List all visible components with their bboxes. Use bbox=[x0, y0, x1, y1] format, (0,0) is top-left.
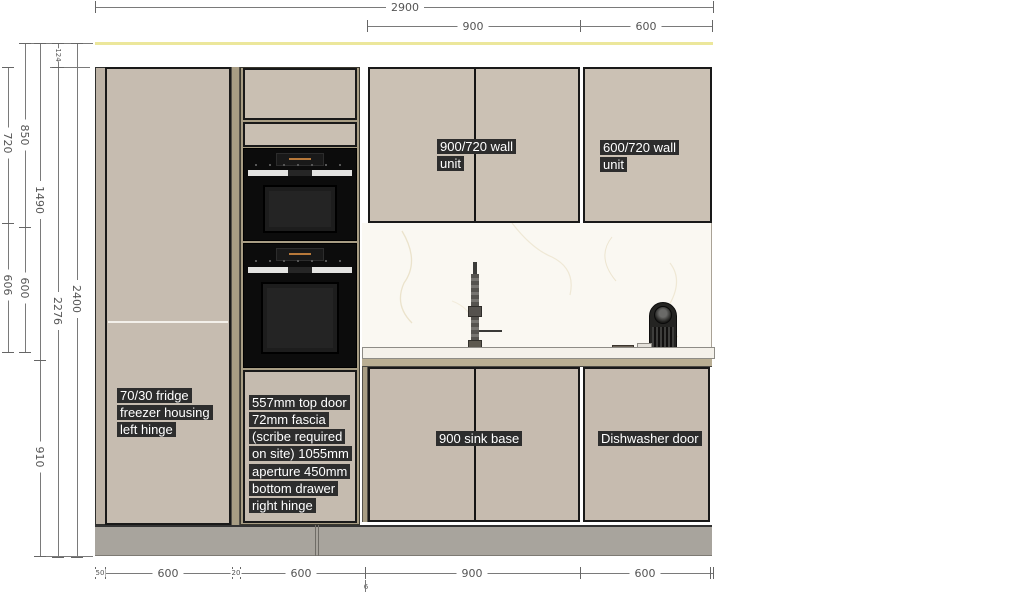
oven-handle bbox=[248, 267, 352, 273]
single-oven[interactable] bbox=[243, 243, 357, 368]
dim-label: 900 bbox=[457, 567, 488, 580]
dim-label: 600 bbox=[18, 273, 31, 304]
wall-unit-600-label: 600/720 wall unit bbox=[600, 139, 682, 173]
coffee-machine-grill bbox=[652, 327, 674, 347]
oven-tower-top-door[interactable] bbox=[243, 68, 357, 120]
dim-label: 900 bbox=[458, 20, 489, 33]
dim-label: 600 bbox=[286, 567, 317, 580]
dim-label: 720 bbox=[1, 128, 14, 159]
ceiling-line bbox=[95, 42, 713, 45]
dim-label: 606 bbox=[1, 270, 14, 301]
fridge-label: 70/30 fridge freezer housing left hinge bbox=[117, 387, 213, 438]
dim-label: 2900 bbox=[386, 1, 424, 14]
dim-label: 850 bbox=[18, 120, 31, 151]
fridge-freezer-door[interactable] bbox=[105, 67, 231, 525]
dishwasher-label: Dishwasher door bbox=[598, 430, 702, 447]
dim-label: 20 bbox=[231, 569, 242, 577]
oven-handle bbox=[248, 170, 352, 176]
filler-strip bbox=[231, 67, 240, 525]
oven-tower-fascia-drawer[interactable] bbox=[243, 122, 357, 147]
dim-label: 600 bbox=[153, 567, 184, 580]
oven-buttons bbox=[255, 260, 345, 262]
base-top-rail bbox=[362, 359, 712, 367]
dim-label: 600 bbox=[631, 20, 662, 33]
dim-label: 50 bbox=[95, 569, 106, 577]
compact-oven[interactable] bbox=[243, 148, 357, 241]
plinth-joint bbox=[318, 525, 319, 556]
dim-label: 2276 bbox=[51, 292, 64, 330]
wall-unit-900-label: 900/720 wall unit bbox=[437, 138, 519, 172]
sink-base-label: 900 sink base bbox=[436, 430, 522, 447]
dim-label: 910 bbox=[33, 442, 46, 473]
oven-door-window bbox=[263, 185, 337, 233]
coffee-machine-dial bbox=[654, 306, 672, 324]
tap-spout bbox=[479, 330, 502, 332]
oven-door-window bbox=[261, 282, 339, 354]
dim-label: 2400 bbox=[70, 280, 83, 318]
dim-label: 124 bbox=[53, 48, 63, 61]
dim-label: 6 bbox=[363, 583, 369, 591]
countertop bbox=[362, 347, 715, 359]
kitchen-elevation-drawing: 2900 900 600 720 606 850 600 1490 bbox=[0, 0, 1024, 597]
fridge-door-split-line bbox=[108, 321, 228, 323]
oven-buttons bbox=[255, 164, 345, 166]
dim-label: 600 bbox=[630, 567, 661, 580]
dim-label: 1490 bbox=[33, 181, 46, 219]
oven-stack-label: 557mm top door 72mm fascia (scribe requi… bbox=[249, 394, 353, 514]
plinth-joint bbox=[315, 525, 316, 556]
plinth bbox=[95, 525, 712, 556]
